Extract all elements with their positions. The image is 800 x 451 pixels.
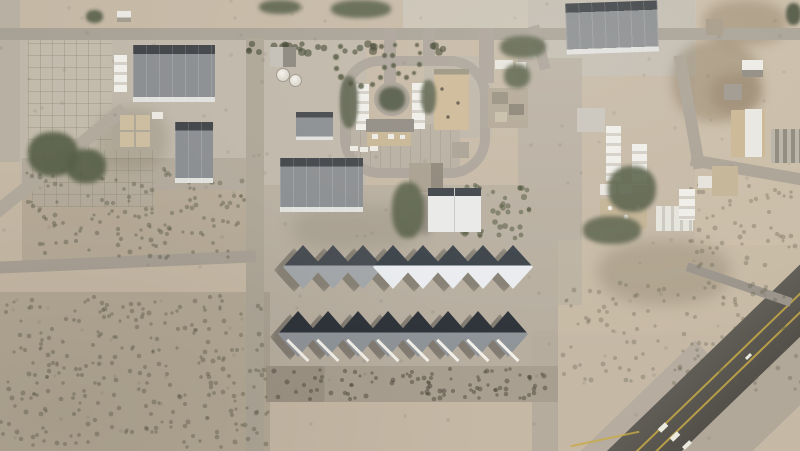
satellite-image <box>0 0 800 451</box>
light-vignette <box>0 0 800 451</box>
